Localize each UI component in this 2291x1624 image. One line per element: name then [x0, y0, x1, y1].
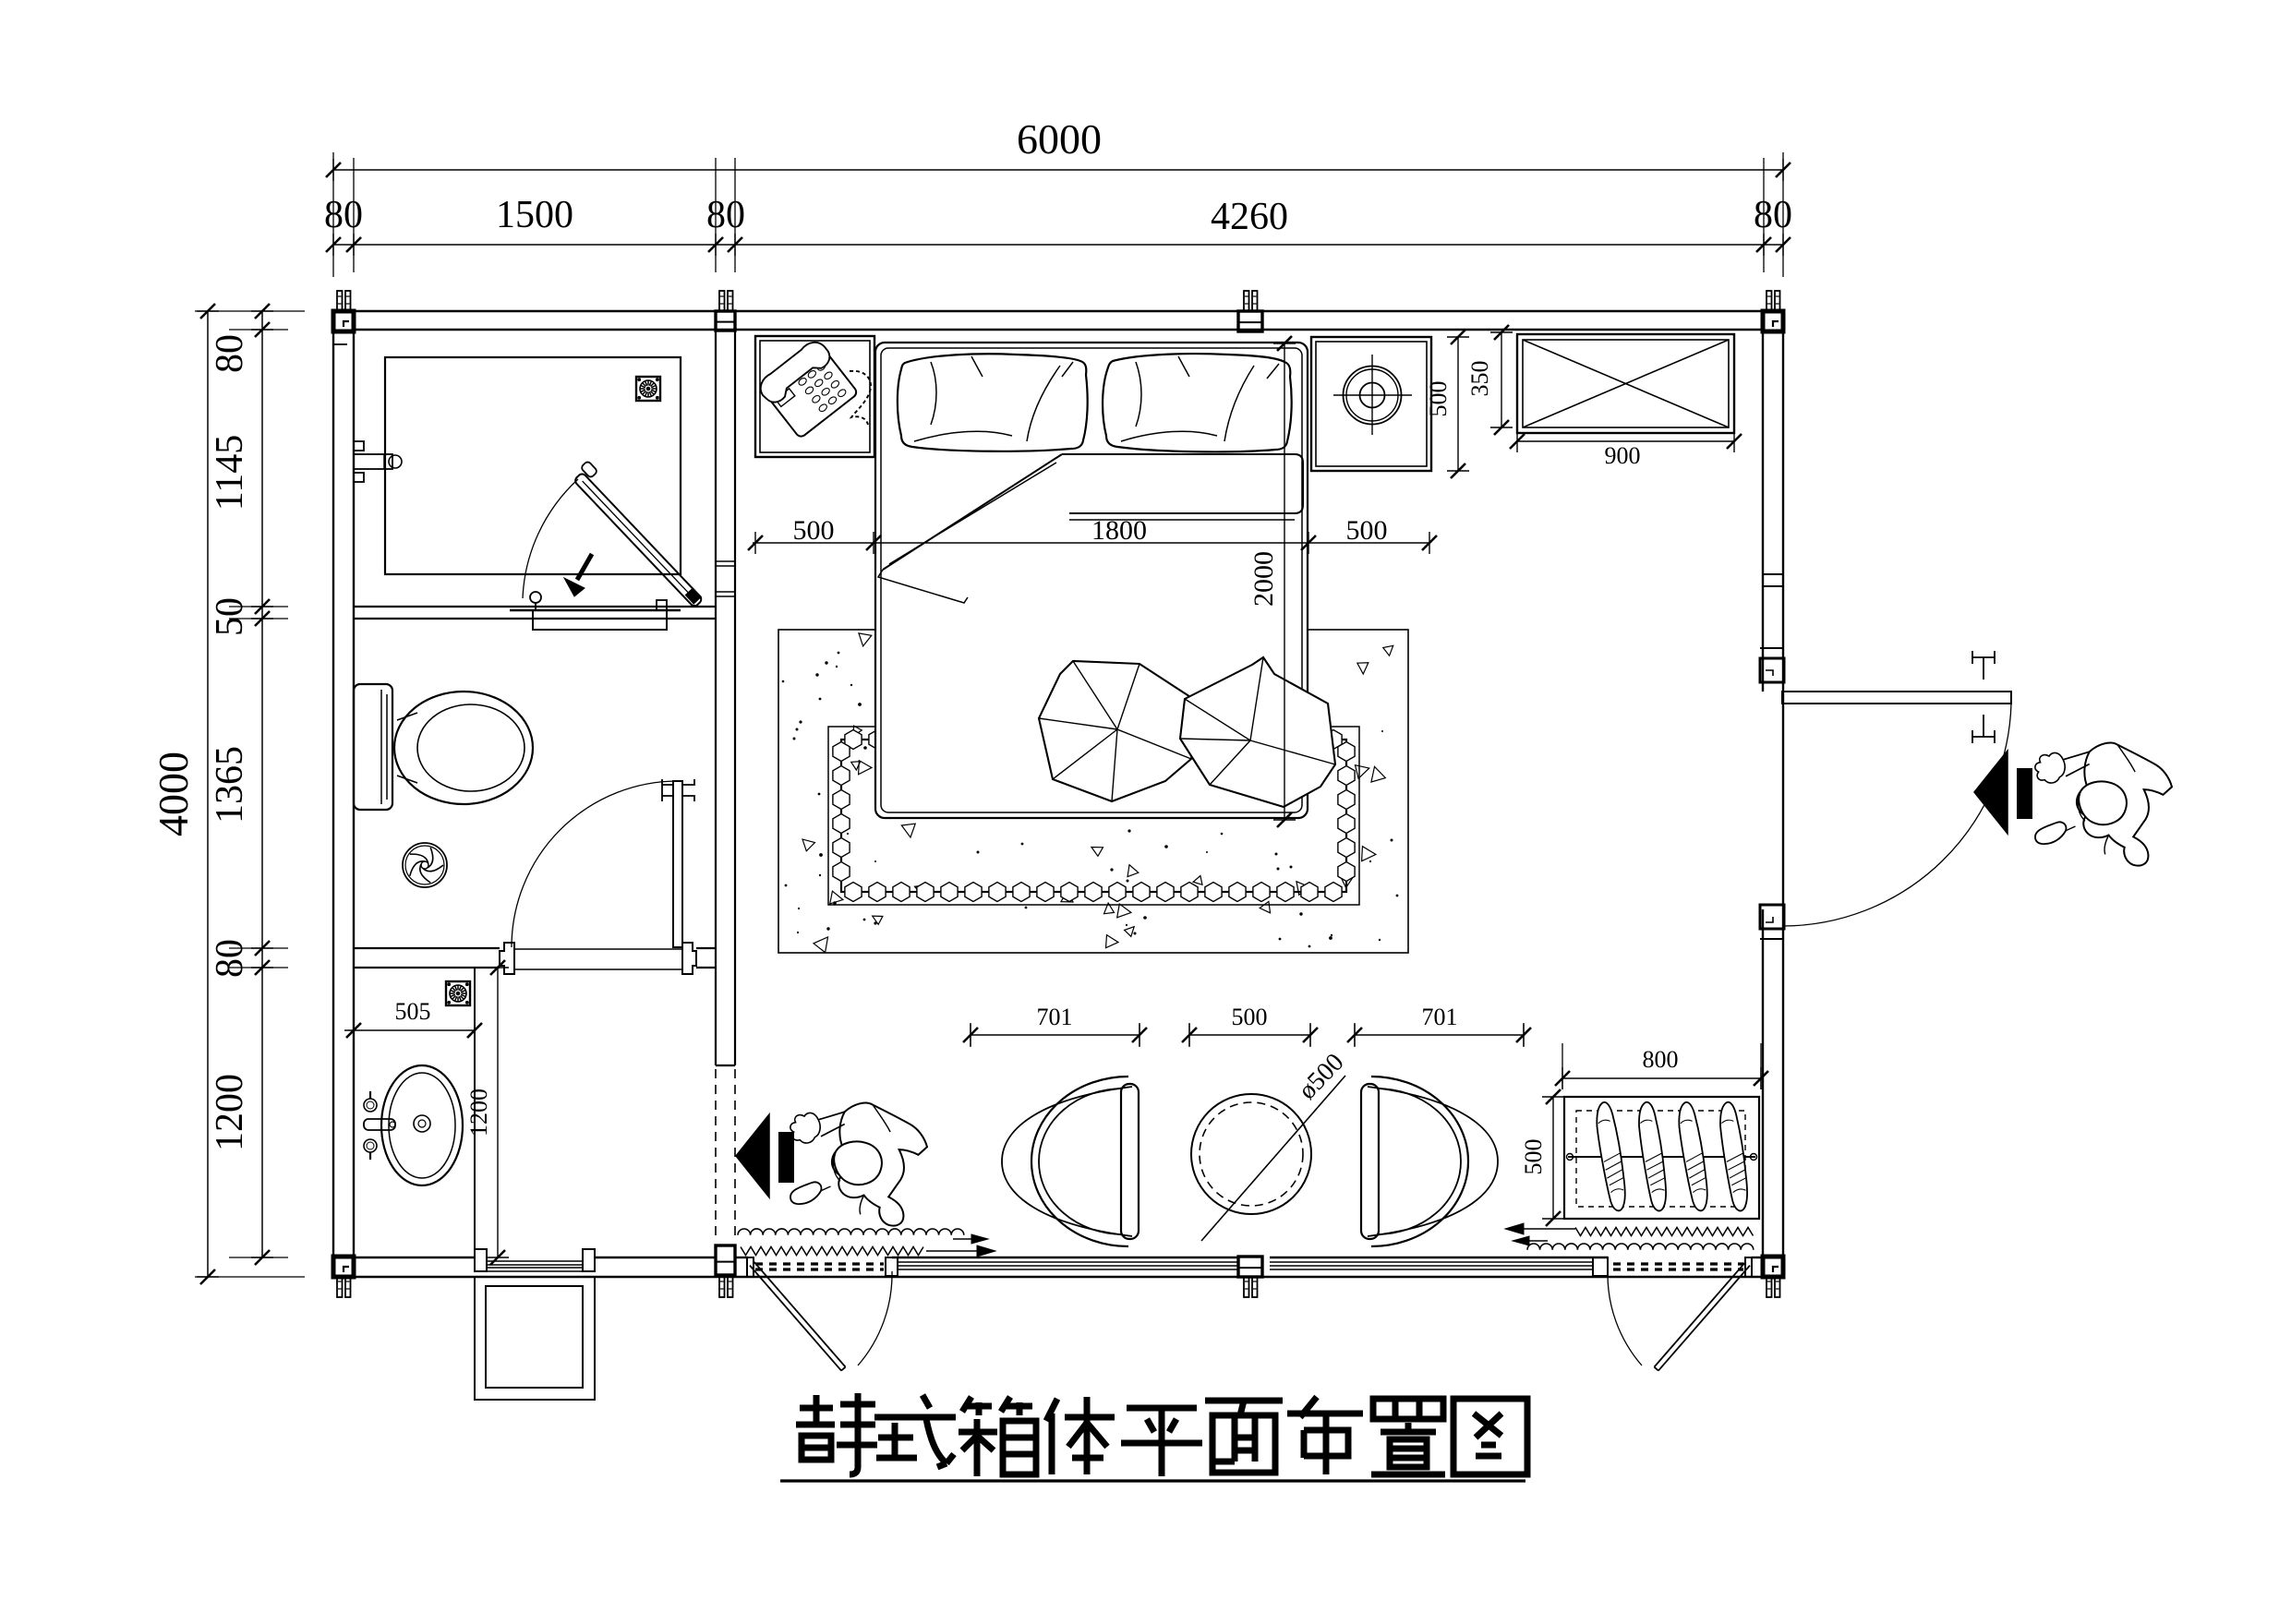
svg-text:50: 50 [209, 597, 251, 636]
svg-text:1365: 1365 [209, 746, 251, 824]
svg-text:500: 500 [1232, 1004, 1268, 1030]
svg-text:80: 80 [1754, 194, 1792, 236]
svg-text:800: 800 [1643, 1046, 1679, 1073]
svg-text:80: 80 [706, 194, 745, 236]
svg-text:500: 500 [1425, 381, 1452, 417]
svg-text:6000: 6000 [1017, 115, 1102, 162]
svg-text:1200: 1200 [465, 1089, 492, 1137]
svg-text:500: 500 [793, 515, 835, 546]
svg-text:900: 900 [1605, 442, 1641, 469]
svg-text:4260: 4260 [1211, 196, 1288, 238]
svg-text:500: 500 [1346, 515, 1388, 546]
svg-text:701: 701 [1037, 1004, 1073, 1030]
svg-text:80: 80 [209, 334, 251, 373]
svg-text:80: 80 [209, 939, 251, 978]
svg-text:505: 505 [395, 998, 431, 1025]
svg-text:701: 701 [1422, 1004, 1458, 1030]
svg-text:1145: 1145 [209, 435, 251, 511]
svg-text:1500: 1500 [496, 194, 573, 236]
svg-text:4000: 4000 [150, 752, 197, 836]
svg-text:2000: 2000 [1248, 551, 1279, 607]
svg-text:1200: 1200 [209, 1074, 251, 1151]
svg-text:500: 500 [1520, 1139, 1547, 1175]
svg-text:80: 80 [324, 194, 363, 236]
svg-text:1800: 1800 [1091, 515, 1147, 546]
svg-text:350: 350 [1466, 361, 1493, 397]
